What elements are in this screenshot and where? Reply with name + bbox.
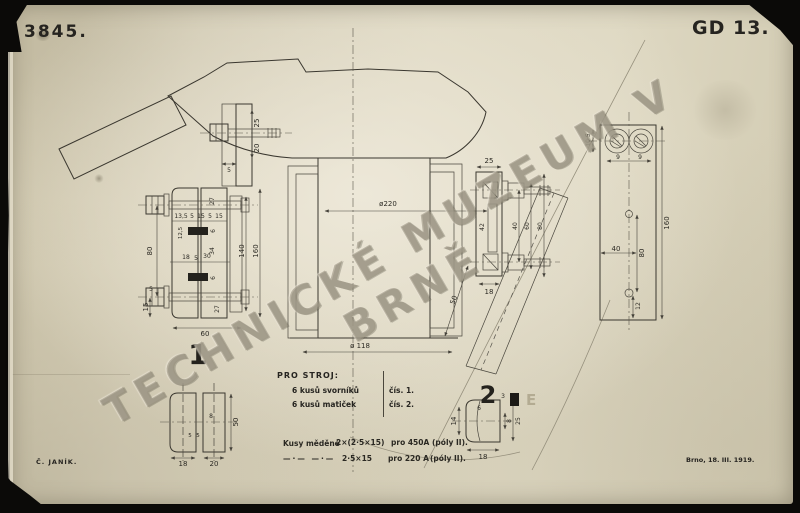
dim-topview-5a: 5 — [188, 433, 192, 439]
parts-table-row1-qty: 6 kusů svorníků — [292, 386, 359, 395]
dim-bracket-18: 18 — [485, 288, 494, 296]
dim-topview-20: 20 — [210, 460, 219, 468]
dim-part1-5c: 5 — [208, 213, 212, 220]
copper-strip-section — [188, 227, 208, 235]
dim-topview-50: 50 — [232, 418, 240, 427]
dim-stud-20: 20 — [253, 144, 261, 153]
dim-part1-15b: 15 — [197, 213, 205, 220]
material-note-dim2: 2·5×15 — [342, 454, 372, 463]
dim-part2-6: 6 — [477, 405, 481, 412]
dim-topview-8: 8 — [209, 413, 213, 420]
dim-part1-140: 140 — [238, 244, 246, 257]
copper-strip-section — [188, 273, 208, 281]
dim-plate-80: 80 — [638, 249, 646, 258]
machine-body-section — [59, 59, 486, 179]
scan-border-right — [793, 0, 800, 513]
dim-part1-30: 30 — [203, 253, 211, 260]
dim-part1-6a: 6 — [210, 229, 217, 233]
plate-code: GD 13. — [692, 17, 770, 39]
dim-plate-160: 160 — [663, 216, 671, 229]
dim-part1-125: 12,5 — [178, 226, 184, 239]
dim-topview-5b: 5 — [196, 433, 200, 439]
dim-part1-5d: 5 — [194, 255, 198, 262]
scan-border-bottom — [0, 505, 800, 513]
material-note-for1: pro 450A — [391, 438, 429, 447]
dim-stud-25: 25 — [253, 119, 261, 128]
scan-border-top — [0, 0, 800, 5]
dim-part1-15c: 15 — [215, 213, 223, 220]
upper-stud-assembly — [200, 104, 292, 186]
dim-part1-160: 160 — [252, 244, 260, 257]
dim-plate-12: 12 — [635, 302, 642, 310]
dim-part2-25: 25 — [515, 417, 522, 425]
parts-table-row2-qty: 6 kusů matiček — [292, 400, 356, 409]
parts-table-row2-ref: čís. 2. — [389, 400, 414, 409]
dim-part2-18: 18 — [479, 453, 488, 461]
strip-edge-view — [510, 393, 519, 406]
dim-part2-14: 14 — [450, 416, 458, 425]
paper-edge-highlight — [8, 6, 13, 503]
mounting-arm — [59, 96, 186, 179]
part2-label: 2 — [480, 381, 497, 409]
material-note-poles1: (póly II). — [432, 438, 468, 447]
dim-part2-8: 8 — [506, 419, 513, 423]
dim-part1-27-bottom: 27 — [214, 305, 221, 313]
dim-part1-5b: 5 — [190, 213, 194, 220]
dim-part2-3: 3 — [501, 393, 505, 400]
parts-table-divider — [383, 371, 384, 417]
dim-topview-18: 18 — [179, 460, 188, 468]
dim-part1-6b: 6 — [210, 276, 217, 280]
dim-dia-220: ø220 — [379, 200, 397, 208]
dim-part1-15: 15 — [142, 303, 150, 312]
parts-table-row1-ref: čís. 1. — [389, 386, 414, 395]
dim-part1-27-top: 27 — [209, 197, 216, 205]
material-note-ditto: —·— —·— — [283, 454, 335, 463]
dim-part1-5: 5 — [149, 286, 153, 293]
dim-stud-5: 5 — [227, 167, 231, 174]
dim-plate-40: 40 — [612, 245, 621, 253]
drawing-number: 3845. — [24, 22, 88, 42]
material-note-dim1: 2×(2·5×15) — [336, 438, 384, 447]
parts-table-title: PRO STROJ: — [277, 371, 339, 380]
material-note-label: Kusy měděné — [283, 439, 340, 448]
dim-bracket-80: 80 — [537, 222, 544, 230]
scanned-technical-drawing: 80 5 15 13,5 5 15 5 15 12,5 27 6 34 18 5… — [0, 0, 800, 513]
dim-part1-18: 18 — [182, 254, 190, 261]
material-note-for2: pro 220 A — [388, 454, 429, 463]
material-note-poles2: (póly II). — [430, 454, 466, 463]
dim-part1-bolt-spacing: 80 — [146, 247, 154, 256]
stamp-letter-e: E — [526, 391, 536, 409]
dim-part1-135: 13,5 — [174, 213, 188, 220]
date-stamp: Brno, 18. III. 1919. — [686, 456, 754, 464]
